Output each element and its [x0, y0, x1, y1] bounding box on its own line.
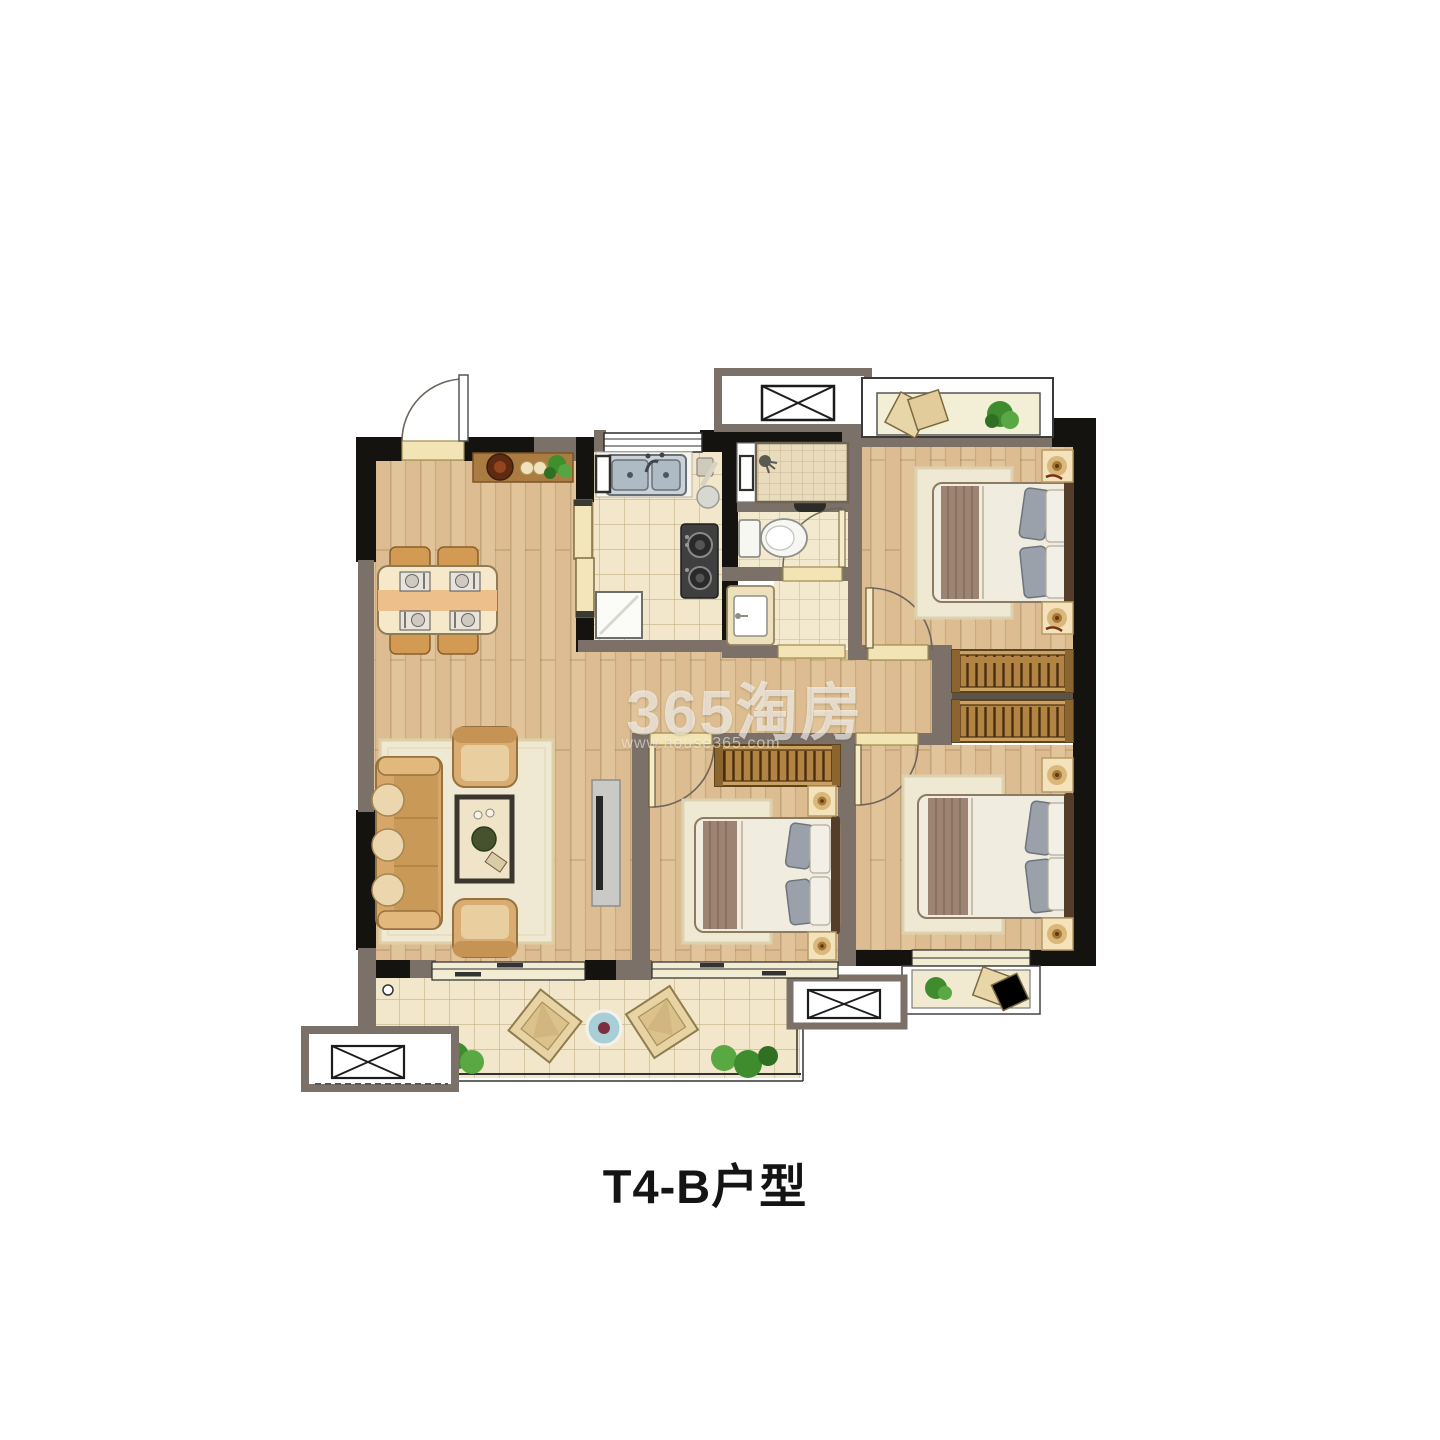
washroom-threshold	[778, 645, 845, 658]
kitchen-stove	[681, 524, 718, 598]
utility-shaft-top	[718, 372, 868, 428]
bedroom3-nightstand-top	[1042, 758, 1073, 792]
entry-door	[402, 375, 468, 460]
balcony-sliding-door	[432, 962, 585, 980]
bedroom2-nightstand-top	[808, 786, 836, 816]
entry-console	[473, 453, 573, 482]
kitchen-sink	[606, 453, 686, 496]
floor-plan-title: T4-B户型	[0, 1148, 1410, 1217]
kitchen-window	[604, 433, 702, 452]
shower-area	[756, 443, 848, 502]
utility-shaft-bottom-left	[305, 1030, 455, 1088]
bedroom2-wardrobe	[715, 745, 840, 786]
place-setting	[450, 572, 480, 591]
bedroom2-bed	[695, 816, 840, 934]
armchair-top	[453, 727, 517, 787]
bedroom3-wardrobe	[952, 700, 1073, 742]
bay-window-bedroom3	[902, 950, 1040, 1014]
bedroom1-wardrobe	[952, 650, 1073, 692]
coffee-table	[457, 797, 512, 881]
bedroom3-bed	[918, 793, 1074, 920]
armchair-bottom	[453, 899, 517, 957]
kitchen-sliding-door	[574, 500, 594, 617]
washbasin	[727, 586, 774, 645]
bedroom1-nightstand-bottom	[1042, 602, 1073, 634]
bay-window-bedroom1	[862, 378, 1053, 438]
bedroom1-bed	[933, 481, 1074, 604]
toilet	[739, 519, 807, 557]
water-heater	[740, 456, 753, 490]
tv-cabinet	[592, 780, 620, 906]
utility-shaft-bottom-right	[790, 978, 904, 1026]
floor-plan-drawing	[0, 0, 1440, 1440]
kitchen-wall-unit	[596, 456, 610, 492]
hallway-floor	[594, 650, 934, 735]
bedroom3-nightstand-bottom	[1042, 918, 1073, 950]
bedroom2-window	[652, 962, 838, 978]
place-setting	[400, 611, 430, 630]
balcony-side-table	[587, 1011, 621, 1045]
place-setting	[450, 611, 480, 630]
bedroom1-nightstand-top	[1042, 450, 1073, 482]
floor-plan-page: 365淘房 www.house365.com T4-B户型	[0, 0, 1440, 1440]
sofa	[372, 757, 442, 929]
balcony-drain-icon	[383, 985, 393, 995]
washroom-floor	[774, 581, 848, 648]
place-setting	[400, 572, 430, 591]
bedroom2-nightstand-bottom	[808, 932, 836, 960]
kitchen-fridge	[596, 592, 642, 638]
